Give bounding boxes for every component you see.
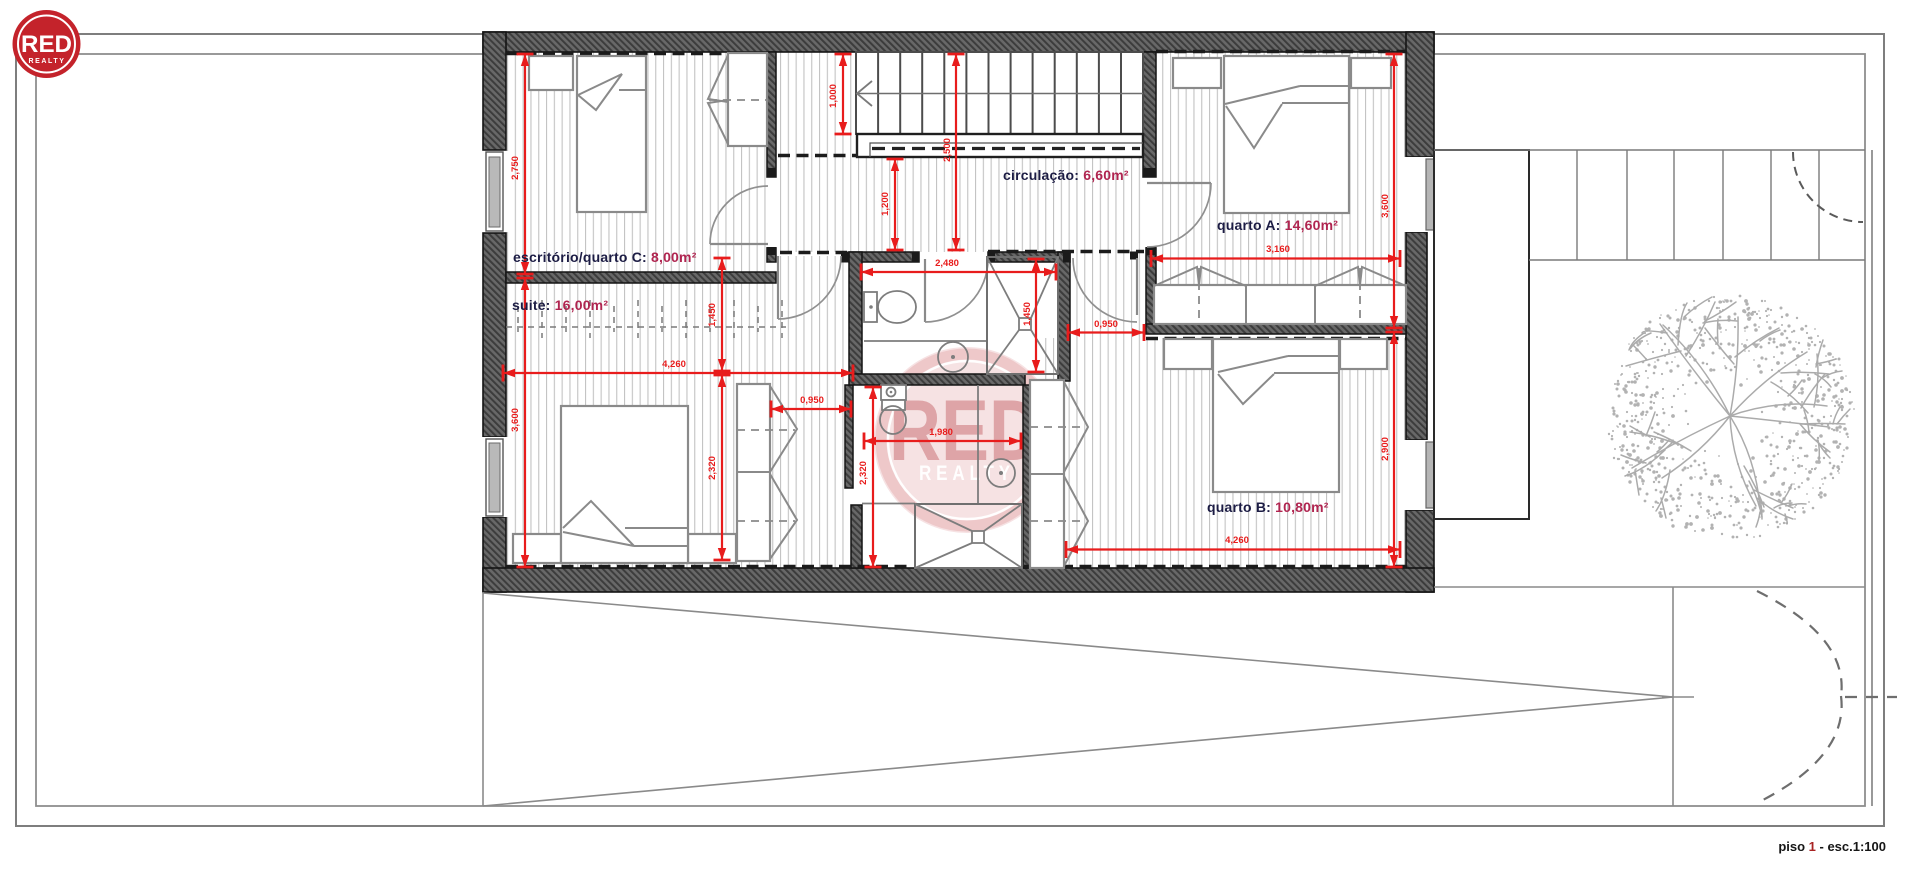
svg-text:3,160: 3,160 <box>1266 244 1290 255</box>
svg-text:0,950: 0,950 <box>800 395 824 406</box>
svg-text:1,980: 1,980 <box>929 427 953 438</box>
svg-text:3,600: 3,600 <box>1380 194 1391 218</box>
svg-text:piso 1 - esc.1:100: piso 1 - esc.1:100 <box>1778 839 1886 854</box>
svg-text:1,450: 1,450 <box>707 303 718 327</box>
svg-text:2,320: 2,320 <box>858 461 869 485</box>
svg-text:1,450: 1,450 <box>1022 302 1033 326</box>
svg-text:1,200: 1,200 <box>880 192 891 216</box>
svg-text:2,900: 2,900 <box>1380 437 1391 461</box>
svg-text:2,500: 2,500 <box>942 138 953 162</box>
svg-text:4,260: 4,260 <box>662 359 686 370</box>
svg-text:2,320: 2,320 <box>707 456 718 480</box>
svg-text:REALTY: REALTY <box>28 58 65 65</box>
svg-text:0,950: 0,950 <box>1094 319 1118 330</box>
svg-text:suite: 16,00m²: suite: 16,00m² <box>512 297 608 313</box>
svg-text:4,260: 4,260 <box>1225 535 1249 546</box>
svg-text:quarto A: 14,60m²: quarto A: 14,60m² <box>1217 217 1338 233</box>
svg-text:3,600: 3,600 <box>510 408 521 432</box>
svg-text:2,750: 2,750 <box>510 156 521 180</box>
svg-text:circulação: 6,60m²: circulação: 6,60m² <box>1003 167 1129 183</box>
svg-text:2,480: 2,480 <box>935 258 959 269</box>
svg-text:escritório/quarto C: 8,00m²: escritório/quarto C: 8,00m² <box>513 249 697 265</box>
svg-text:1,000: 1,000 <box>828 84 839 108</box>
svg-text:RED: RED <box>21 31 72 58</box>
svg-text:quarto B: 10,80m²: quarto B: 10,80m² <box>1207 499 1329 515</box>
